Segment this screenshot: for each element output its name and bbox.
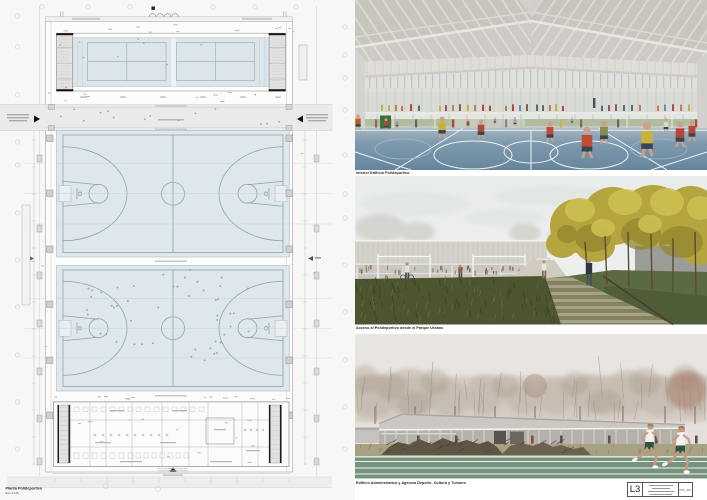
svg-text:Planta Polideportivo: Planta Polideportivo [6, 487, 43, 491]
svg-text:Esc 1:125: Esc 1:125 [6, 491, 20, 495]
